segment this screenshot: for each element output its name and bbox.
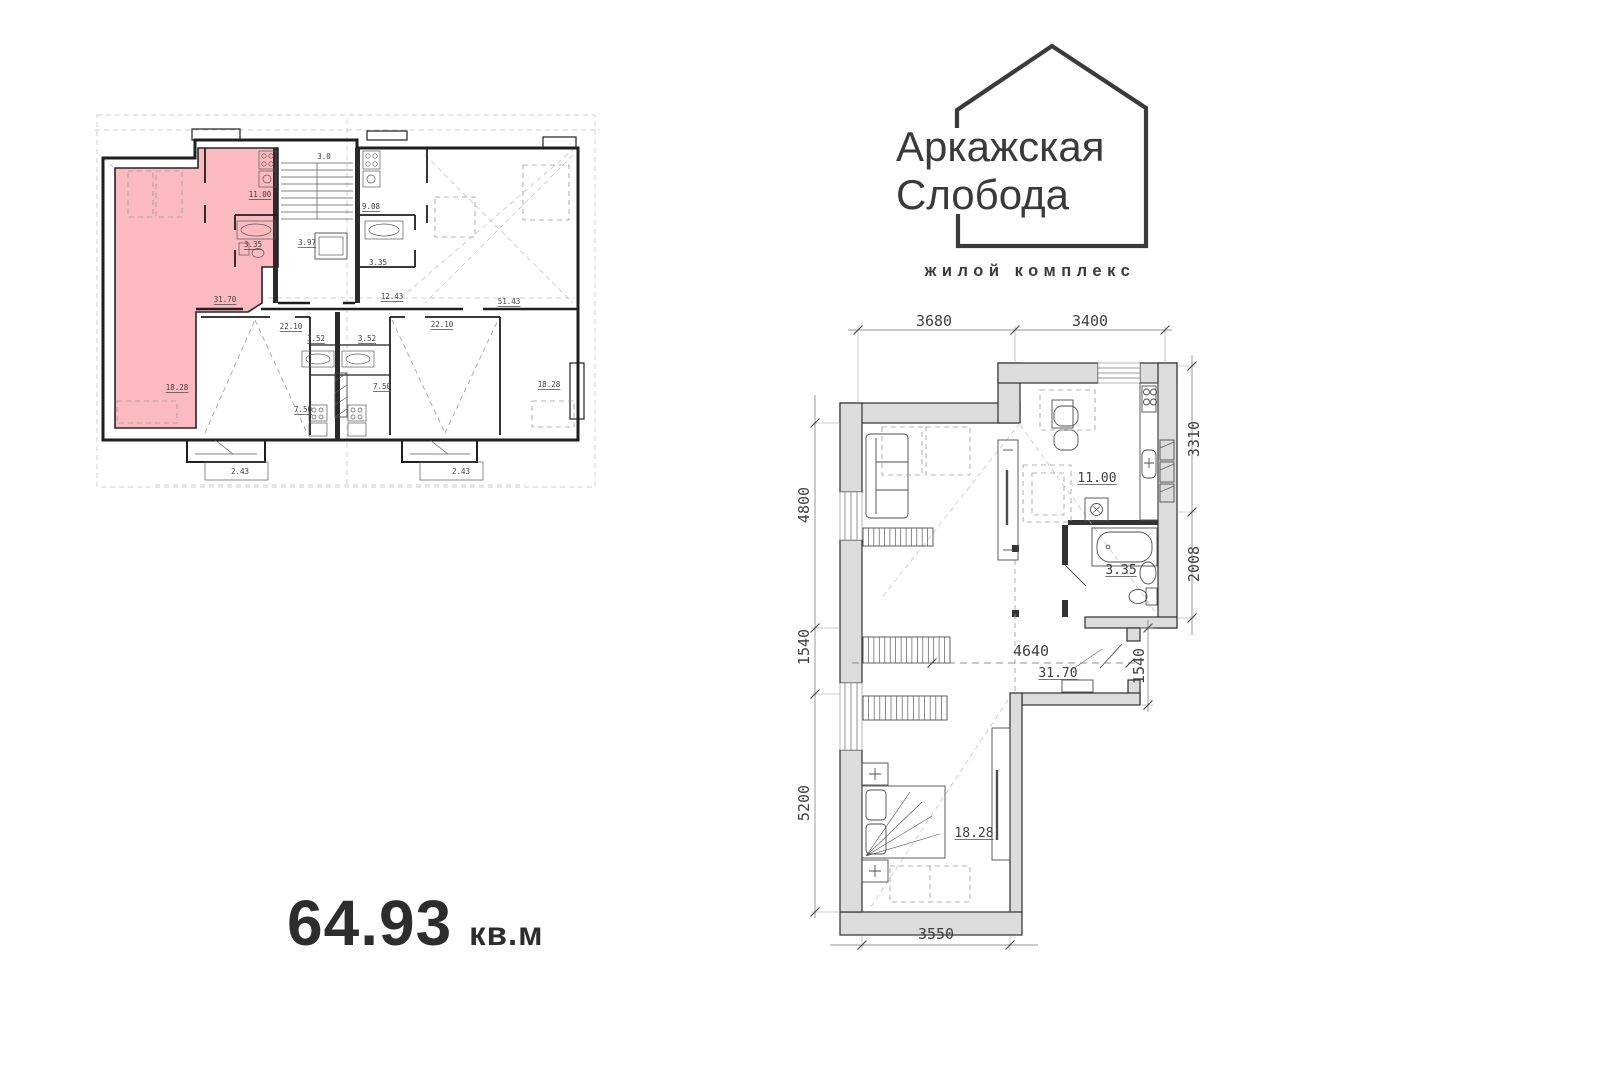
area-value: 64.93 <box>287 886 452 960</box>
dimension-label: 3310 <box>1185 421 1203 457</box>
room-area-label: 51.43 <box>498 297 521 306</box>
detailed-floorplan: 3680340048001540520033102008154035504640… <box>770 300 1210 980</box>
floorplan-page: { "logo": { "line1": "Аркажская", "line2… <box>0 0 1600 1080</box>
room-area-label: 3.35 <box>1105 563 1136 578</box>
room-area-label: 7.50 <box>294 405 313 414</box>
room-area-label: 3.52 <box>358 334 376 343</box>
dimension-label: 2.43 <box>452 467 470 476</box>
dimension-label: 3680 <box>916 312 952 330</box>
dimension-label: 5200 <box>795 785 813 821</box>
area-unit: кв.м <box>469 915 543 953</box>
logo-title-line2: Слобода <box>896 171 1070 218</box>
stair-core <box>273 148 360 303</box>
overview-floorplan: 3.011.003.353.979.083.3531.7012.4351.432… <box>95 105 610 500</box>
detailed-floorplan-drawing: 3680340048001540520033102008154035504640… <box>770 300 1210 980</box>
area-label: 64.93 кв.м <box>287 886 544 960</box>
logo: Аркажская Слобода жилой комплекс <box>880 28 1170 290</box>
logo-subtitle: жилой комплекс <box>924 262 1136 280</box>
dimension-label: 2008 <box>1185 546 1203 582</box>
room-area-label: 11.00 <box>249 190 272 199</box>
radiator <box>863 696 947 720</box>
dimension-label: 4800 <box>795 487 813 523</box>
logo-title-line1: Аркажская <box>896 123 1105 170</box>
radiators <box>863 528 950 720</box>
room-area-label: 22.10 <box>280 322 303 331</box>
room-area-label: 22.10 <box>431 320 454 329</box>
room-area-label: 3.52 <box>307 334 325 343</box>
room-area-label: 18.28 <box>954 826 993 841</box>
radiator-fins <box>869 696 942 720</box>
room-area-label: 3.35 <box>369 258 387 267</box>
room-area-label: 31.70 <box>1038 666 1077 681</box>
room-area-label: 31.70 <box>214 295 237 304</box>
dimension-label: 3.0 <box>317 152 331 161</box>
overview-floorplan-drawing: 3.011.003.353.979.083.3531.7012.4351.432… <box>95 105 610 500</box>
dimension-label: 2.43 <box>231 467 249 476</box>
room-area-label: 18.28 <box>166 383 189 392</box>
room-area-label: 18.28 <box>538 380 561 389</box>
dimension-label: 4640 <box>1013 642 1049 660</box>
dimension-label: 3400 <box>1072 312 1108 330</box>
room-area-label: 3.35 <box>244 240 262 249</box>
radiator-fins <box>868 637 944 663</box>
room-area-label: 7.50 <box>373 382 392 391</box>
radiator-fins <box>868 528 927 546</box>
dimension-label: 3550 <box>918 925 954 943</box>
dimension-label: 1540 <box>795 629 813 665</box>
logo-house-icon: Аркажская Слобода жилой комплекс <box>880 28 1170 290</box>
room-area-label: 9.08 <box>362 202 381 211</box>
furniture <box>862 383 1158 882</box>
room-area-label: 11.00 <box>1077 471 1116 486</box>
room-area-label: 3.97 <box>298 238 316 247</box>
room-area-label: 12.43 <box>381 292 404 301</box>
dimension-label: 1540 <box>1130 648 1148 684</box>
